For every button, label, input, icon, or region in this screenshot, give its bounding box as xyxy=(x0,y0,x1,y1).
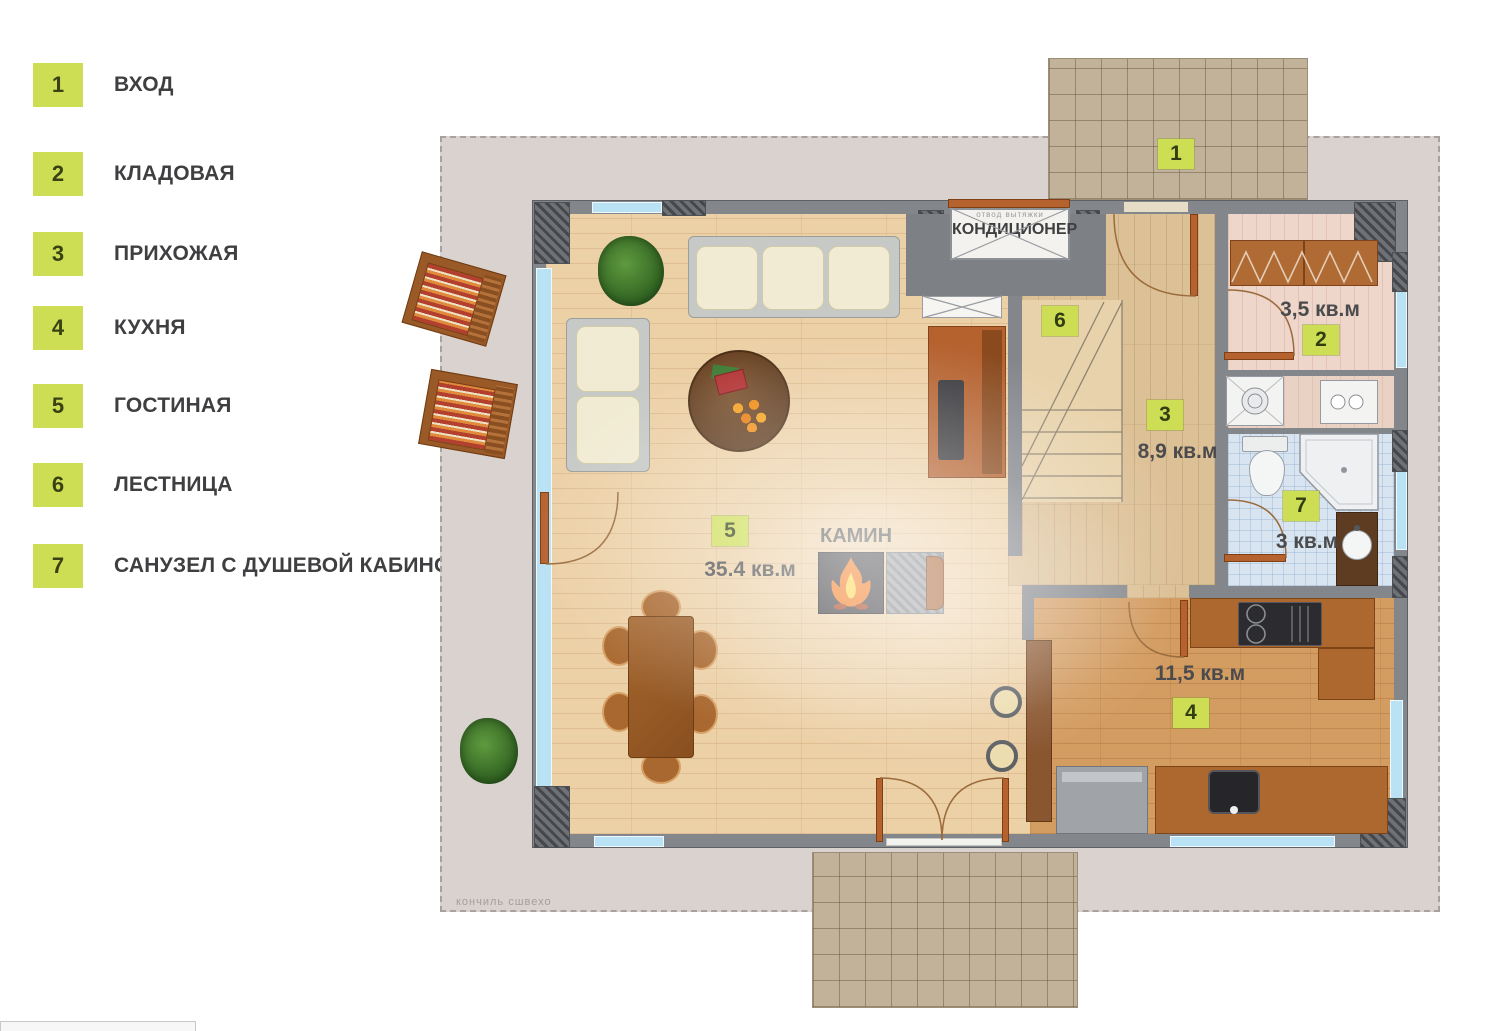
window-east-bath xyxy=(1396,470,1407,550)
fruit-bowl xyxy=(730,398,770,432)
room-badge-6: 6 xyxy=(1042,306,1078,336)
hall-opening xyxy=(1008,556,1024,586)
sofa-cushion xyxy=(828,246,890,310)
area-label-hallway: 8,9 кв.м xyxy=(1120,440,1235,464)
patio-door-leaf-right xyxy=(1002,778,1009,842)
wall-segment xyxy=(1022,585,1034,640)
sofa-cushion xyxy=(696,246,758,310)
kitchen-counter-right xyxy=(1318,648,1375,700)
sink-tap xyxy=(1230,806,1238,814)
floor-plan-page: 1 ВХОД 2 КЛАДОВАЯ 3 ПРИХОЖАЯ 4 КУХНЯ 5 Г… xyxy=(0,0,1500,1031)
window-south-living xyxy=(594,836,664,847)
bar-stool xyxy=(986,740,1018,772)
pier-north xyxy=(662,200,706,216)
pier-sw xyxy=(534,786,570,848)
legend-label-storage: КЛАДОВАЯ xyxy=(114,152,235,196)
area-label-kitchen: 11,5 кв.м xyxy=(1140,662,1260,686)
bath-door-leaf xyxy=(1224,554,1286,562)
window-north-living xyxy=(592,202,662,213)
patio-door-leaf-left xyxy=(876,778,883,842)
legend-key-4: 4 xyxy=(33,306,83,350)
area-label-storage: 3,5 кв.м xyxy=(1255,298,1385,322)
sofa-cushion xyxy=(576,326,640,392)
potted-plant xyxy=(598,236,664,306)
room-badge-3: 3 xyxy=(1147,400,1183,430)
washing-machine xyxy=(1226,376,1284,426)
pier-nw xyxy=(534,202,570,264)
crossed-label-box xyxy=(922,296,1002,318)
legend-key-6: 6 xyxy=(33,463,83,507)
front-door-leaf xyxy=(1190,214,1198,296)
fireplace-label: КАМИН xyxy=(820,525,892,547)
pier-east-3 xyxy=(1392,556,1408,598)
garden-patio xyxy=(812,852,1078,1008)
bench-cushion xyxy=(926,556,944,610)
room-badge-1: 1 xyxy=(1158,139,1194,169)
plan-caption: кончиль сшвехо xyxy=(456,896,552,908)
terrace-door-leaf xyxy=(540,492,549,564)
sofa-cushion xyxy=(762,246,824,310)
fireplace xyxy=(818,552,884,614)
deck-chair-cushion xyxy=(428,379,496,450)
air-conditioner-box: отвод вытяжки КОНДИЦИОНЕР xyxy=(950,208,1070,260)
kitchen-counter-bottom xyxy=(1155,766,1388,834)
flame-icon xyxy=(819,553,883,613)
storage-door-leaf xyxy=(1224,352,1294,360)
legend-label-living-room: ГОСТИНАЯ xyxy=(114,384,232,428)
tv-cabinet-shelf xyxy=(982,330,1002,474)
utility-sink xyxy=(1320,380,1378,424)
sofa-cushion xyxy=(576,396,640,464)
window-east-storage xyxy=(1396,290,1407,368)
ac-lintel xyxy=(948,199,1070,208)
tv-screen xyxy=(938,380,964,460)
entrance-patio xyxy=(1048,58,1308,200)
window-south-kitchen xyxy=(1170,836,1335,847)
dining-table xyxy=(628,616,694,758)
deck-chair xyxy=(418,369,518,459)
kitchen-door-leaf xyxy=(1180,600,1188,657)
pier-east-2 xyxy=(1392,430,1408,472)
legend-label-entrance: ВХОД xyxy=(114,63,174,107)
legend-key-3: 3 xyxy=(33,232,83,276)
pier-east-1 xyxy=(1392,252,1408,292)
front-door-threshold xyxy=(1124,202,1188,212)
bar-counter xyxy=(1026,640,1052,822)
legend-key-1: 1 xyxy=(33,63,83,107)
area-label-bathroom: 3 кв.м xyxy=(1252,530,1362,554)
appliance-top xyxy=(1062,772,1142,782)
legend-key-2: 2 xyxy=(33,152,83,196)
legend-key-5: 5 xyxy=(33,384,83,428)
legend-label-stairs: ЛЕСТНИЦА xyxy=(114,463,233,507)
garden-bush xyxy=(460,718,518,784)
legend-key-7: 7 xyxy=(33,544,83,588)
legend-label-bathroom: САНУЗЕЛ С ДУШЕВОЙ КАБИНОЙ xyxy=(114,544,466,588)
patio-door-threshold xyxy=(886,838,1002,846)
corner-strip xyxy=(0,1021,196,1031)
area-label-living: 35.4 кв.м xyxy=(690,558,810,582)
bar-stool xyxy=(990,686,1022,718)
room-badge-5: 5 xyxy=(712,516,748,546)
wardrobe xyxy=(1230,240,1378,286)
kitchen-door-opening xyxy=(1127,585,1189,598)
ac-note: отвод вытяжки xyxy=(952,210,1068,220)
room-badge-4: 4 xyxy=(1173,698,1209,728)
legend-label-hallway: ПРИХОЖАЯ xyxy=(114,232,239,276)
legend-label-kitchen: КУХНЯ xyxy=(114,306,186,350)
cooktop xyxy=(1238,602,1322,646)
ac-label: КОНДИЦИОНЕР xyxy=(952,221,1077,238)
room-badge-7: 7 xyxy=(1283,491,1319,521)
room-badge-2: 2 xyxy=(1303,325,1339,355)
